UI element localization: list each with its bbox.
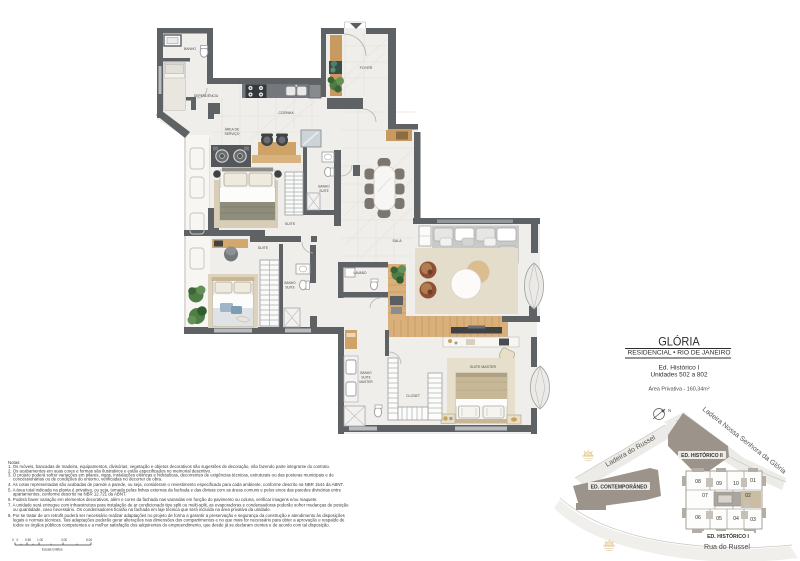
svg-text:Ladeira do Russel: Ladeira do Russel — [605, 434, 658, 468]
svg-text:SERVIÇO: SERVIÇO — [224, 132, 239, 136]
svg-text:COZINHA: COZINHA — [278, 111, 294, 115]
svg-text:BANHO: BANHO — [184, 47, 196, 51]
svg-text:ED. CONTEMPORÂNEO: ED. CONTEMPORÂNEO — [591, 483, 648, 490]
svg-text:04: 04 — [733, 516, 739, 522]
svg-text:N: N — [668, 408, 671, 413]
svg-text:05: 05 — [716, 516, 722, 522]
svg-text:Unidades 502 a 802: Unidades 502 a 802 — [651, 372, 708, 379]
svg-text:Rua do Russel: Rua do Russel — [704, 544, 750, 551]
svg-text:Área Privativa - 160,34m²: Área Privativa - 160,34m² — [649, 386, 710, 393]
svg-text:0.50: 0.50 — [25, 538, 31, 542]
svg-text:SUITE: SUITE — [258, 246, 269, 250]
svg-text:07: 07 — [702, 493, 708, 499]
svg-text:todos os órgãos públicos compe: todos os órgãos públicos competentes e a… — [13, 523, 330, 528]
svg-text:02: 02 — [745, 493, 751, 499]
svg-text:legais e normas técnicas. Tais: legais e normas técnicas. Tais adaptaçõe… — [13, 518, 345, 523]
svg-text:BANHO: BANHO — [284, 281, 296, 285]
svg-text:06: 06 — [695, 515, 701, 521]
svg-text:Escala Gráfica: Escala Gráfica — [42, 548, 63, 552]
svg-text:FOYER: FOYER — [360, 66, 373, 70]
svg-text:SUITE: SUITE — [285, 222, 296, 226]
svg-text:BANHO: BANHO — [318, 185, 330, 189]
svg-text:0: 0 — [17, 538, 19, 542]
svg-text:ED. HISTÓRICO II: ED. HISTÓRICO II — [681, 451, 723, 459]
svg-text:SALA: SALA — [392, 239, 402, 243]
svg-text:3.00: 3.00 — [61, 538, 67, 542]
svg-text:SUITE: SUITE — [319, 189, 328, 193]
svg-text:GLÓRIA: GLÓRIA — [658, 335, 700, 349]
svg-text:0: 0 — [12, 538, 14, 542]
svg-text:03: 03 — [750, 517, 756, 523]
svg-text:apartamentos, conforme descrit: apartamentos, conforme descrito na NBR 1… — [13, 492, 126, 497]
svg-text:BANHO: BANHO — [360, 371, 372, 375]
svg-text:09: 09 — [716, 481, 722, 487]
svg-text:concessionárias ou de condiçõe: concessionárias ou de condições do entor… — [13, 477, 162, 482]
svg-text:Ed. Histórico I: Ed. Histórico I — [659, 365, 700, 372]
svg-text:4. As cotas representadas são: 4. As cotas representadas são acabadas d… — [8, 482, 344, 487]
svg-text:CLOSET: CLOSET — [406, 394, 421, 398]
svg-text:SUITE MASTER: SUITE MASTER — [470, 365, 496, 369]
svg-text:MASTER: MASTER — [359, 380, 373, 384]
svg-text:10: 10 — [733, 481, 739, 487]
svg-text:08: 08 — [695, 479, 701, 485]
svg-text:ED. HISTÓRICO I: ED. HISTÓRICO I — [707, 532, 749, 540]
svg-text:6. Poderá haver variação em el: 6. Poderá haver variação em elementos de… — [8, 497, 318, 502]
svg-text:ÁREA DE: ÁREA DE — [225, 128, 240, 132]
svg-text:ou quantidade, caso necessário: ou quantidade, caso necessário. Os conde… — [13, 507, 271, 512]
svg-text:1.00: 1.00 — [37, 538, 43, 542]
svg-text:5.00: 5.00 — [86, 538, 92, 542]
svg-text:01: 01 — [750, 478, 756, 484]
svg-text:RESIDENCIAL • RIO DE JANEIRO: RESIDENCIAL • RIO DE JANEIRO — [628, 350, 731, 357]
svg-text:SUITE: SUITE — [361, 376, 370, 380]
svg-text:DEPENDÊNCIA: DEPENDÊNCIA — [194, 93, 219, 98]
svg-text:LAVABO: LAVABO — [354, 271, 367, 275]
svg-text:SUITE: SUITE — [285, 286, 294, 290]
